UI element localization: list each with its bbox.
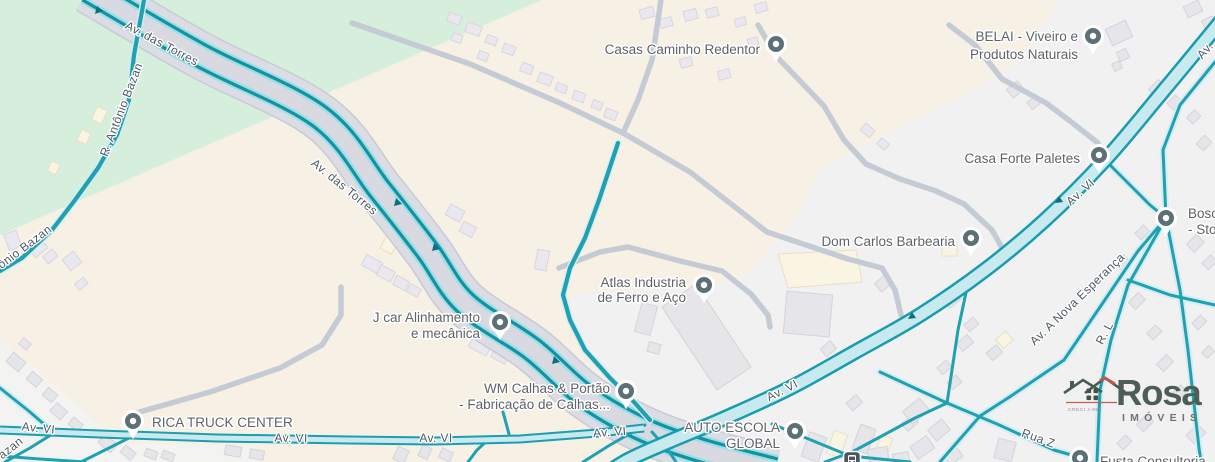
svg-text:Dom Carlos Barbearia: Dom Carlos Barbearia: [821, 234, 955, 249]
svg-text:Fusta Consultoria: Fusta Consultoria: [1100, 454, 1206, 462]
svg-text:Bosc: Bosc: [1188, 206, 1215, 221]
svg-text:de Ferro e Aço: de Ferro e Aço: [597, 290, 686, 305]
svg-text:IMÓVEIS: IMÓVEIS: [1122, 411, 1202, 424]
svg-text:Av. VI: Av. VI: [593, 424, 627, 440]
svg-text:Atlas Industria: Atlas Industria: [600, 275, 686, 290]
svg-text:AUTO ESCOLA: AUTO ESCOLA: [684, 420, 780, 435]
svg-text:Rosa: Rosa: [1116, 372, 1202, 413]
svg-text:Casa Forte Paletes: Casa Forte Paletes: [964, 151, 1080, 166]
svg-text:Av. VI: Av. VI: [274, 431, 308, 446]
svg-text:Av. VI: Av. VI: [419, 431, 452, 445]
svg-text:Produtos Naturais: Produtos Naturais: [970, 47, 1078, 62]
svg-text:- Sto: - Sto: [1188, 222, 1215, 237]
svg-text:WM Calhas & Portão: WM Calhas & Portão: [484, 381, 610, 396]
svg-text:e mecânica: e mecânica: [411, 326, 481, 341]
svg-text:- Fabricação de Calhas...: - Fabricação de Calhas...: [459, 397, 610, 412]
svg-text:RICA TRUCK CENTER: RICA TRUCK CENTER: [152, 415, 293, 430]
svg-text:CRECI J-855: CRECI J-855: [1068, 407, 1102, 413]
svg-text:J car Alinhamento: J car Alinhamento: [373, 310, 480, 325]
svg-text:BELAI - Viveiro e: BELAI - Viveiro e: [975, 29, 1078, 44]
svg-text:Casas Caminho Redentor: Casas Caminho Redentor: [605, 42, 761, 57]
svg-text:GLOBAL: GLOBAL: [726, 436, 781, 451]
